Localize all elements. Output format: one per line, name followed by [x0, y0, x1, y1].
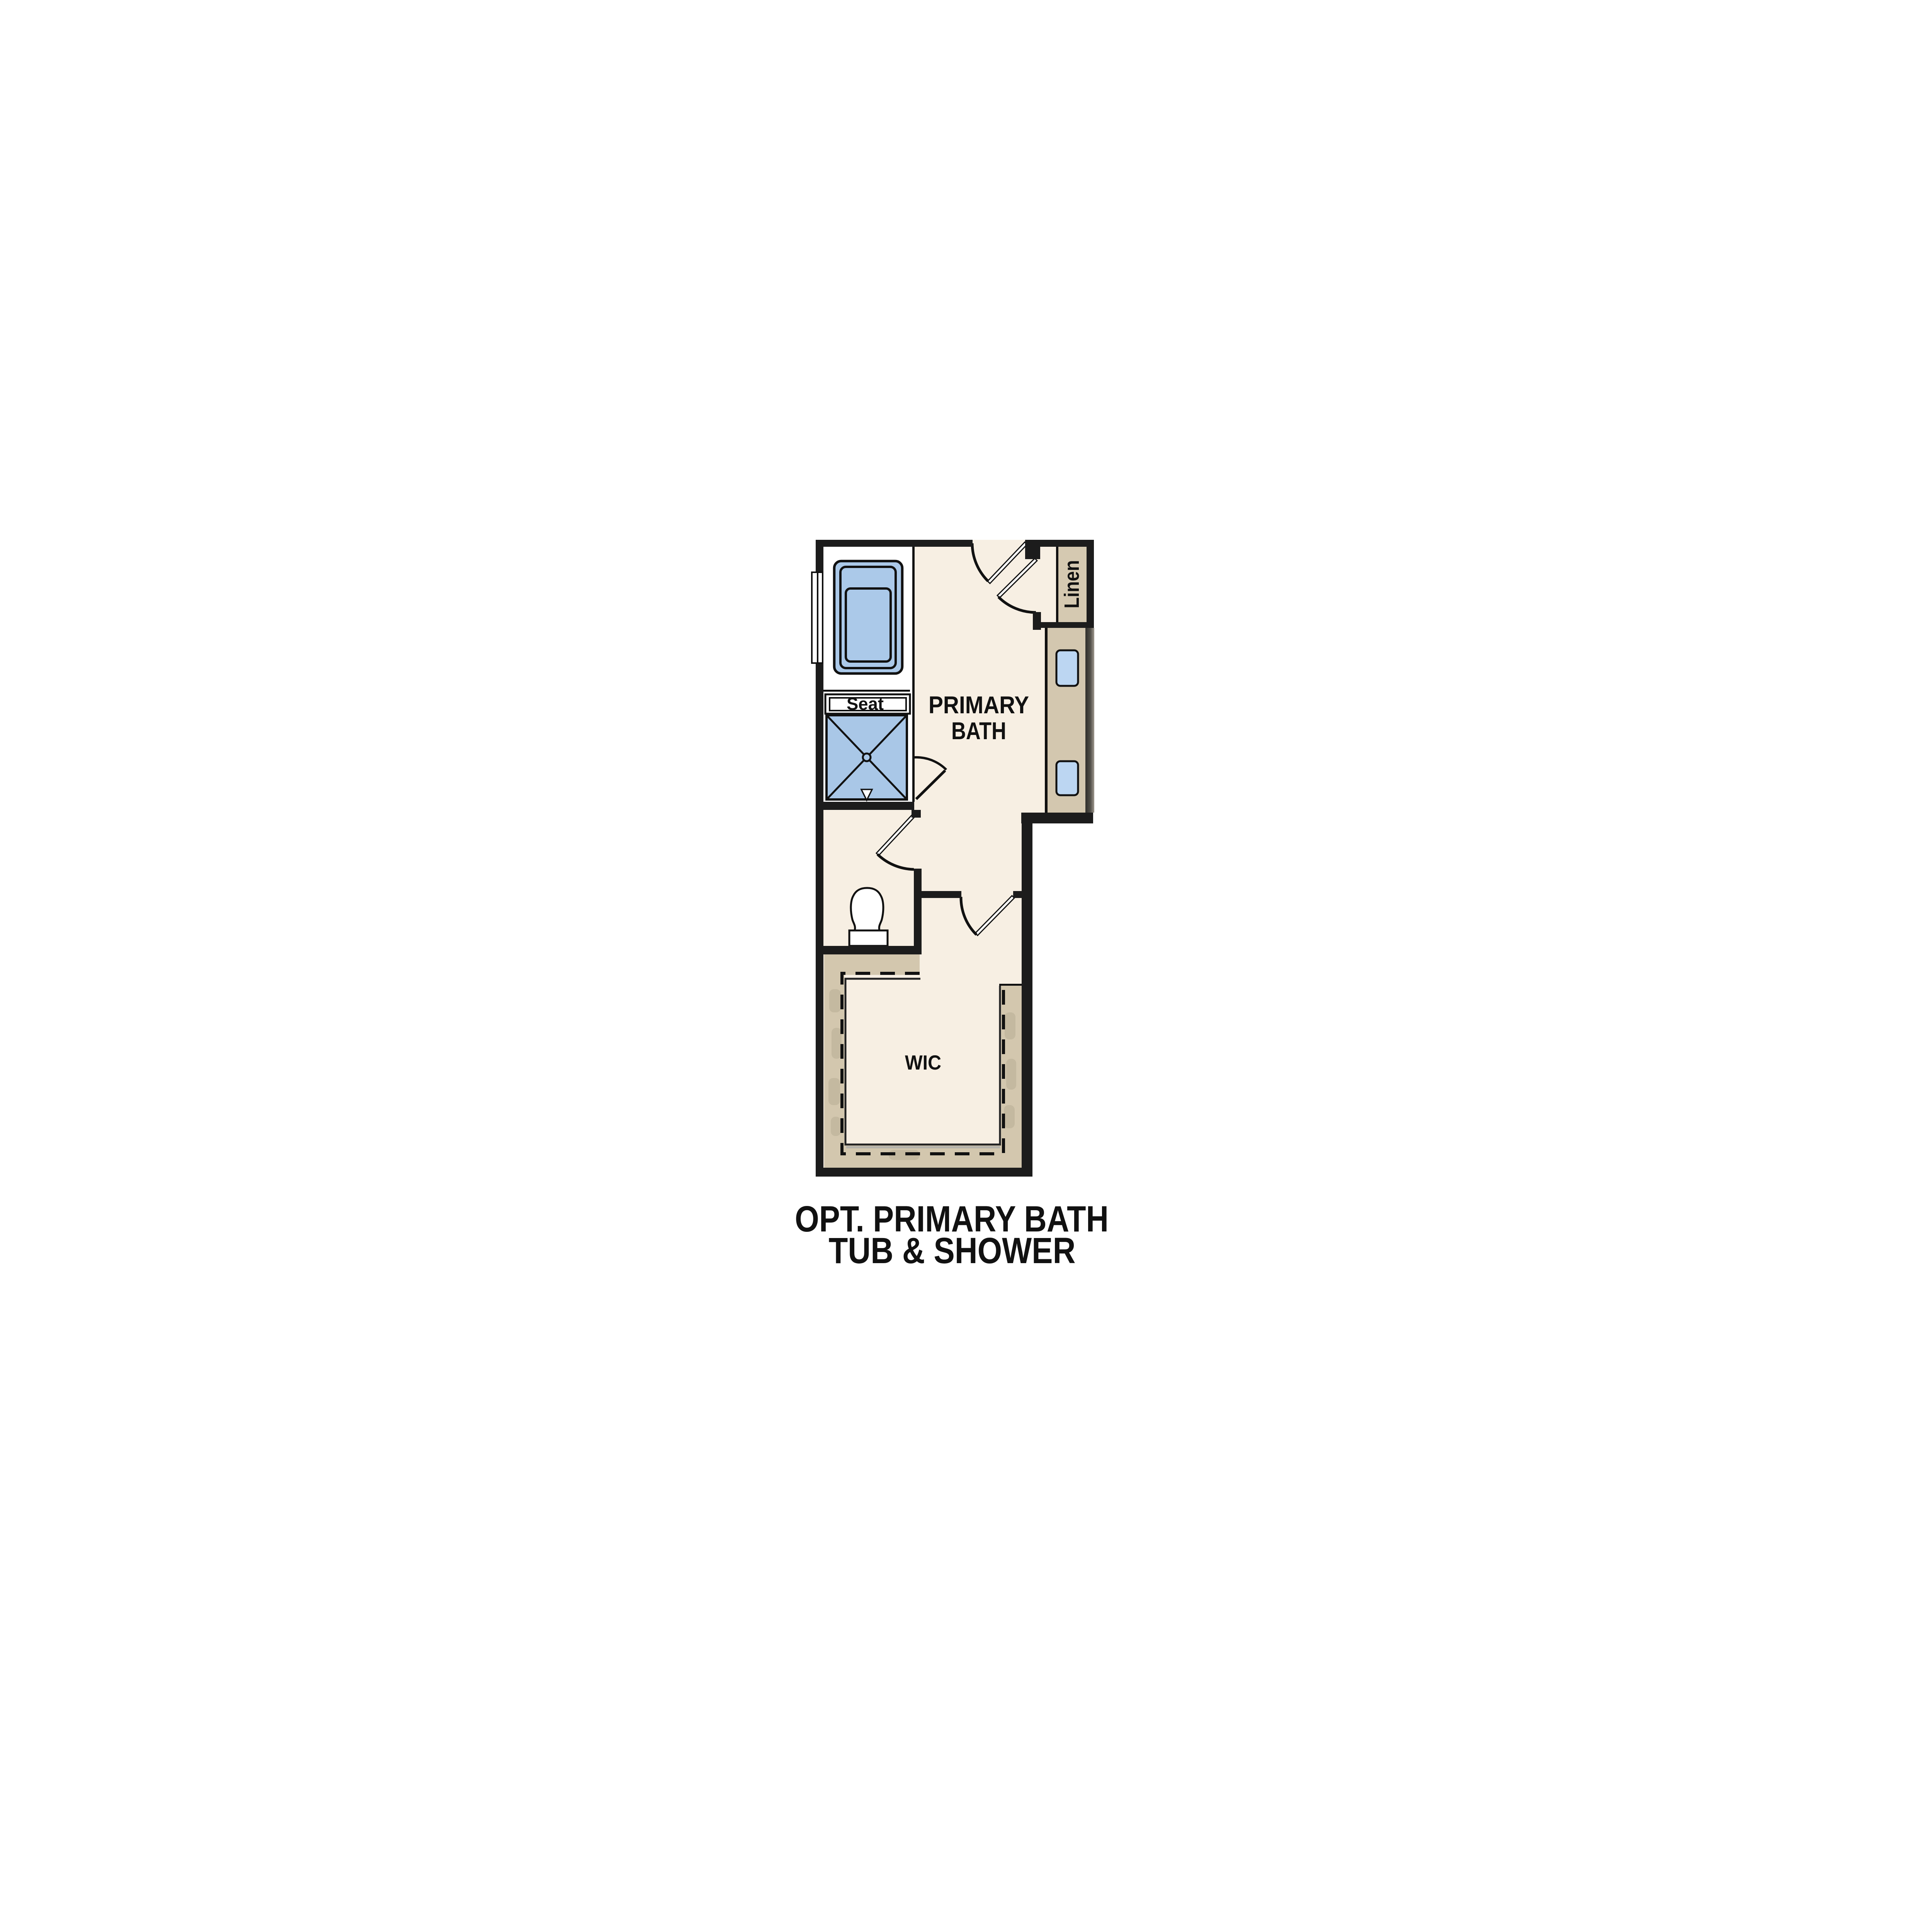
- svg-text:BATH: BATH: [951, 718, 1006, 745]
- svg-text:PRIMARY: PRIMARY: [929, 692, 1029, 719]
- svg-text:TUB & SHOWER: TUB & SHOWER: [829, 1230, 1076, 1271]
- svg-text:Linen: Linen: [1060, 560, 1083, 609]
- svg-text:Seat: Seat: [847, 694, 884, 714]
- svg-text:WIC: WIC: [905, 1051, 941, 1074]
